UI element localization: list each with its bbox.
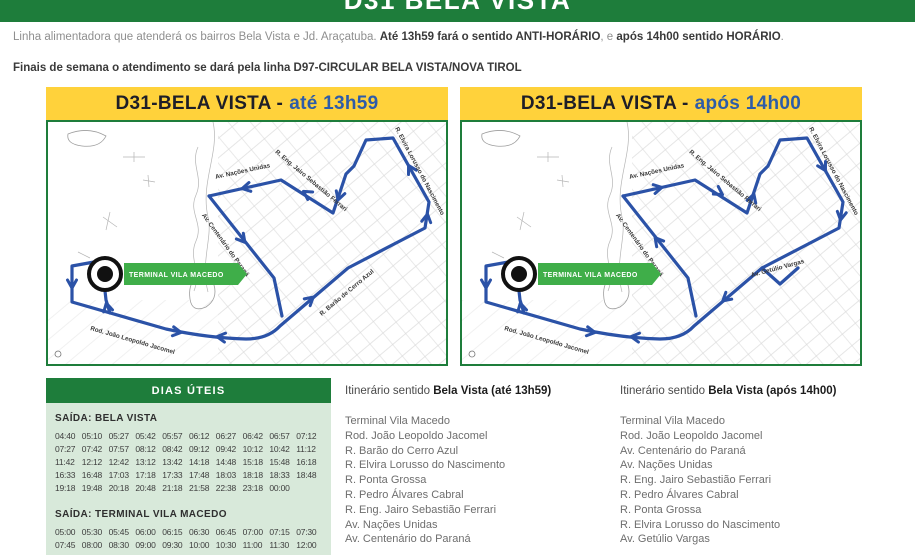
stop-item: R. Elvira Lorusso do Nascimento	[620, 518, 888, 533]
departure-time: 16:18	[296, 457, 322, 467]
terminal-banner-label: TERMINAL VILA MACEDO	[543, 272, 638, 279]
stops-list: Terminal Vila MacedoRod. João Leopoldo J…	[620, 414, 888, 547]
page-title: D31 BELA VISTA	[0, 0, 915, 16]
itinerary-header: Itinerário sentido Bela Vista (até 13h59…	[345, 385, 613, 397]
stop-item: Av. Getúlio Vargas	[620, 532, 888, 547]
stop-item: Rod. João Leopoldo Jacomel	[620, 429, 888, 444]
schedule-body: SAÍDA: BELA VISTA 04:4005:1005:2705:4205…	[46, 403, 331, 555]
stop-item: R. Ponta Grossa	[345, 473, 613, 488]
departure-time: 12:42	[109, 457, 135, 467]
departure-time: 09:30	[162, 540, 188, 550]
intro-normal: Linha alimentadora que atenderá os bairr…	[13, 31, 380, 43]
map-panel-apos-14h00: D31-BELA VISTA - após 14h00	[460, 87, 862, 366]
map-panel-ate-13h59: D31-BELA VISTA - até 13h59	[46, 87, 448, 366]
departure-time: 05:57	[162, 431, 188, 441]
departure-time: 21:18	[162, 483, 188, 493]
departure-time: 06:12	[189, 431, 215, 441]
itinerary-apos-14h00: Itinerário sentido Bela Vista (após 14h0…	[620, 385, 888, 547]
departure-time: 23:18	[243, 483, 269, 493]
bus-line-flyer: D31 BELA VISTA Linha alimentadora que at…	[0, 0, 915, 555]
weekend-note: Finais de semana o atendimento se dará p…	[13, 62, 905, 74]
departure-time: 11:30	[269, 540, 295, 550]
departure-time: 06:15	[162, 527, 188, 537]
departure-time: 06:27	[216, 431, 242, 441]
departure-time: 07:45	[55, 540, 81, 550]
departure-time: 09:42	[216, 444, 242, 454]
departure-time: 14:18	[189, 457, 215, 467]
intro-normal: .	[781, 31, 784, 43]
departure-time: 04:40	[55, 431, 81, 441]
itinerary-direction: Bela Vista (até 13h59)	[433, 385, 551, 397]
departure-time: 07:27	[55, 444, 81, 454]
departure-time: 09:00	[135, 540, 161, 550]
intro-bold-antihorario: Até 13h59 fará o sentido ANTI-HORÁRIO	[380, 31, 601, 43]
itinerary-ate-13h59: Itinerário sentido Bela Vista (até 13h59…	[345, 385, 613, 547]
departure-time: 17:03	[109, 470, 135, 480]
departure-time: 10:12	[243, 444, 269, 454]
departure-time: 19:18	[55, 483, 81, 493]
stop-item: Av. Nações Unidas	[620, 458, 888, 473]
departure-time: 19:48	[82, 483, 108, 493]
departure-time: 06:42	[243, 431, 269, 441]
departure-time: 12:12	[82, 457, 108, 467]
stop-item: R. Ponta Grossa	[620, 503, 888, 518]
departure-time: 18:18	[243, 470, 269, 480]
panel-title: D31-BELA VISTA -	[521, 93, 689, 115]
departure-time: 08:12	[135, 444, 161, 454]
panel-title-time: até 13h59	[289, 93, 378, 115]
departure-time: 22:38	[216, 483, 242, 493]
departure-time: 12:00	[296, 540, 322, 550]
departure-time: 07:12	[296, 431, 322, 441]
departure-time: 05:00	[55, 527, 81, 537]
route-map-apos-14h00: Av. Nações Unidas R. Eng. Jairo Sebastiã…	[460, 120, 862, 366]
top-banner: D31 BELA VISTA	[0, 0, 915, 22]
departure-time: 15:18	[243, 457, 269, 467]
departure-time: 05:45	[109, 527, 135, 537]
stops-list: Terminal Vila MacedoRod. João Leopoldo J…	[345, 414, 613, 547]
departure-time: 16:33	[55, 470, 81, 480]
stop-item: Terminal Vila Macedo	[345, 414, 613, 429]
departure-time: 05:10	[82, 431, 108, 441]
departure-time: 06:00	[135, 527, 161, 537]
departure-time: 06:57	[269, 431, 295, 441]
departure-time: 11:42	[55, 457, 81, 467]
departure-time: 16:48	[82, 470, 108, 480]
departure-time: 07:42	[82, 444, 108, 454]
times-grid-bela-vista: 04:4005:1005:2705:4205:5706:1206:2706:42…	[55, 431, 322, 493]
departure-time: 14:48	[216, 457, 242, 467]
departure-time: 07:57	[109, 444, 135, 454]
departure-time: 17:18	[135, 470, 161, 480]
departure-time: 05:30	[82, 527, 108, 537]
departure-time: 00:00	[269, 483, 295, 493]
itinerary-header: Itinerário sentido Bela Vista (após 14h0…	[620, 385, 888, 397]
itinerary-prefix: Itinerário sentido	[345, 385, 433, 397]
departure-time: 11:12	[296, 444, 322, 454]
weekday-schedule-panel: DIAS ÚTEIS SAÍDA: BELA VISTA 04:4005:100…	[46, 378, 331, 555]
stop-item: R. Eng. Jairo Sebastião Ferrari	[345, 503, 613, 518]
intro-bold-horario: após 14h00 sentido HORÁRIO	[616, 31, 780, 43]
departure-time: 09:12	[189, 444, 215, 454]
departure-time: 17:33	[162, 470, 188, 480]
stop-item: Av. Nações Unidas	[345, 518, 613, 533]
departure-time: 13:12	[135, 457, 161, 467]
departure-title-terminal: SAÍDA: TERMINAL VILA MACEDO	[55, 509, 322, 520]
route-map-svg: Av. Nações Unidas R. Eng. Jairo Sebastiã…	[462, 122, 860, 364]
departure-time: 11:00	[243, 540, 269, 550]
departure-time: 18:33	[269, 470, 295, 480]
intro-normal: , e	[600, 31, 616, 43]
intro-text: Linha alimentadora que atenderá os bairr…	[13, 31, 905, 43]
departure-time: 08:42	[162, 444, 188, 454]
departure-time: 07:00	[243, 527, 269, 537]
departure-time: 07:15	[269, 527, 295, 537]
stop-item: Terminal Vila Macedo	[620, 414, 888, 429]
times-grid-terminal: 05:0005:3005:4506:0006:1506:3006:4507:00…	[55, 527, 322, 555]
departure-time: 17:48	[189, 470, 215, 480]
departure-time: 13:42	[162, 457, 188, 467]
departure-time: 06:45	[216, 527, 242, 537]
departure-time: 10:30	[216, 540, 242, 550]
stop-item: Av. Centenário do Paraná	[620, 444, 888, 459]
departure-time: 10:00	[189, 540, 215, 550]
panel-title-time: após 14h00	[695, 93, 802, 115]
departure-time: 20:48	[135, 483, 161, 493]
departure-time: 05:27	[109, 431, 135, 441]
departure-time: 15:48	[269, 457, 295, 467]
departure-time: 08:00	[82, 540, 108, 550]
map-panel-header: D31-BELA VISTA - até 13h59	[46, 87, 448, 120]
departure-time: 06:30	[189, 527, 215, 537]
departure-time: 07:30	[296, 527, 322, 537]
terminal-banner-label: TERMINAL VILA MACEDO	[129, 272, 224, 279]
departure-time: 20:18	[109, 483, 135, 493]
stop-item: R. Barão do Cerro Azul	[345, 444, 613, 459]
departure-time: 05:42	[135, 431, 161, 441]
stop-item: R. Pedro Álvares Cabral	[620, 488, 888, 503]
stop-item: Av. Centenário do Paraná	[345, 532, 613, 547]
schedule-header: DIAS ÚTEIS	[46, 378, 331, 403]
itinerary-direction: Bela Vista (após 14h00)	[708, 385, 836, 397]
departure-title-bela-vista: SAÍDA: BELA VISTA	[55, 413, 322, 424]
map-panel-header: D31-BELA VISTA - após 14h00	[460, 87, 862, 120]
stop-item: Rod. João Leopoldo Jacomel	[345, 429, 613, 444]
departure-time: 10:42	[269, 444, 295, 454]
stop-item: R. Eng. Jairo Sebastião Ferrari	[620, 473, 888, 488]
route-map-ate-13h59: Av. Nações Unidas R. Eng. Jairo Sebastiã…	[46, 120, 448, 366]
stop-item: R. Pedro Álvares Cabral	[345, 488, 613, 503]
departure-time: 18:48	[296, 470, 322, 480]
departure-time: 18:03	[216, 470, 242, 480]
itinerary-prefix: Itinerário sentido	[620, 385, 708, 397]
panel-title: D31-BELA VISTA -	[115, 93, 283, 115]
route-map-svg: Av. Nações Unidas R. Eng. Jairo Sebastiã…	[48, 122, 446, 364]
stop-item: R. Elvira Lorusso do Nascimento	[345, 458, 613, 473]
departure-time: 08:30	[109, 540, 135, 550]
departure-time: 21:58	[189, 483, 215, 493]
